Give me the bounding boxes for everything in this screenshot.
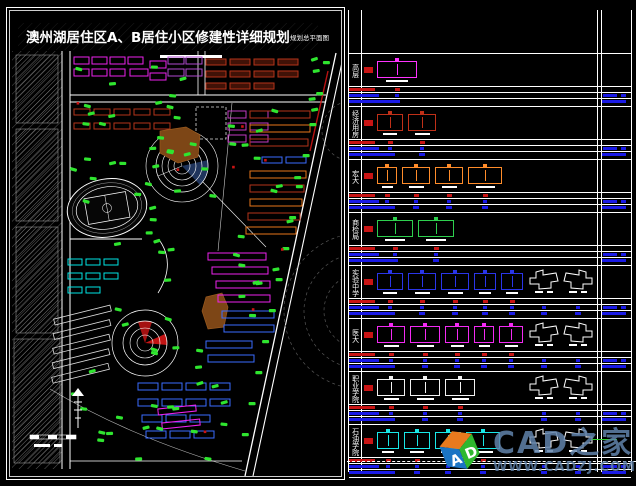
cluster-white-block (196, 107, 226, 139)
building-divider (390, 117, 391, 128)
blue-tick (388, 365, 394, 368)
building-elevation (408, 110, 436, 135)
color-swatch (364, 438, 373, 444)
building-divider (449, 170, 450, 181)
stat-row-blue-2 (349, 257, 631, 263)
white-building-elevation (563, 269, 593, 295)
building-elevation (377, 322, 405, 347)
blue-tick (388, 418, 394, 421)
building-divider (395, 223, 396, 234)
building-strip (349, 425, 631, 457)
stat-rows (349, 457, 631, 475)
red-tick (414, 194, 419, 197)
building-elevation (377, 375, 405, 400)
blue-tick (482, 312, 488, 315)
blue-tick (388, 306, 392, 309)
building-elevation (445, 375, 475, 400)
blue-total-bar (349, 306, 379, 309)
blue-tick (457, 418, 463, 421)
blue-tick (414, 200, 418, 203)
building-roof-notch (420, 111, 424, 115)
red-tick (420, 141, 425, 144)
blue-tick (447, 200, 451, 203)
color-swatch (364, 279, 373, 285)
area-label-bar (505, 345, 518, 347)
blue-tick (392, 259, 398, 262)
building-divider (511, 329, 512, 340)
lower-plaza (123, 321, 167, 365)
building-elevation (377, 110, 403, 135)
color-swatch (364, 120, 373, 126)
title-band: 澳州湖居住区A、B居住小区修建性详细规划 规划总平面图 (18, 23, 329, 58)
building-roof-notch (393, 217, 397, 221)
building-outline (377, 61, 417, 78)
stat-rows (349, 245, 631, 263)
blue-tick (541, 418, 547, 421)
red-tick (510, 300, 515, 303)
building-divider (485, 276, 486, 287)
building-roof-notch (482, 323, 486, 327)
stat-value-bar (602, 100, 626, 103)
stat-value-bar (603, 200, 617, 203)
boundary-dashed-line (347, 461, 636, 462)
building-roof-notch (483, 164, 487, 168)
stat-value-bar (602, 365, 626, 368)
red-tick (389, 353, 394, 356)
area-label-bar (382, 451, 394, 453)
building-roof-notch (453, 270, 457, 274)
building-divider (457, 329, 458, 340)
cluster-top-purple (168, 57, 202, 76)
blue-tick (434, 253, 438, 256)
building-elevation (499, 322, 523, 347)
blue-tick (446, 465, 450, 468)
blue-tick (423, 359, 427, 362)
area-label-bar (383, 292, 397, 294)
building-elevation (402, 163, 430, 188)
building-row (377, 375, 475, 400)
building-elevation (377, 216, 413, 241)
blue-tick (422, 365, 428, 368)
building-divider (422, 276, 423, 287)
building-elevation (410, 322, 440, 347)
building-roof-notch (389, 376, 393, 380)
red-tick (395, 88, 400, 91)
building-divider (391, 329, 392, 340)
building-roof-notch (389, 323, 393, 327)
building-strip (349, 319, 631, 351)
building-roof-notch (509, 323, 513, 327)
building-outline (499, 326, 523, 343)
stat-rows (349, 139, 631, 157)
building-elevation (408, 269, 436, 294)
building-elevation (377, 269, 403, 294)
area-label-bar (409, 186, 424, 188)
blue-tick (422, 418, 428, 421)
building-roof-notch (423, 323, 427, 327)
blue-tick (385, 200, 389, 203)
red-tick (388, 141, 393, 144)
city-hatch-strip (12, 51, 62, 469)
building-row (377, 322, 523, 347)
cluster-mid-darkred (74, 109, 170, 129)
blue-tick (542, 412, 546, 415)
building-strip (349, 266, 631, 298)
stat-value-bar (603, 147, 617, 150)
blue-tick (454, 365, 460, 368)
blue-total-bar (349, 412, 379, 415)
building-outline (377, 432, 399, 449)
color-swatch (364, 332, 373, 338)
blue-tick (483, 200, 487, 203)
white-building-elevation (563, 375, 593, 401)
area-label-bar (442, 186, 457, 188)
legend-row-8: 石油学院 (349, 424, 631, 477)
legend-rows: 高层经济用房宏大商检局实验中学医大职业学院石油学院 (349, 53, 631, 478)
building-divider (387, 170, 388, 181)
building-roof-notch (446, 429, 450, 433)
red-total-bar (349, 300, 375, 303)
stat-value-bar (602, 153, 626, 156)
building-outline (404, 432, 430, 449)
legend-row-6: 医大 (349, 318, 631, 371)
building-roof-notch (481, 429, 485, 433)
blue-tick (575, 418, 581, 421)
building-outline (474, 273, 496, 290)
building-strip (349, 160, 631, 192)
stat-value-bar (602, 259, 626, 262)
area-label-bar (410, 451, 424, 453)
cluster-west-cyan (68, 259, 118, 293)
building-divider (422, 117, 423, 128)
building-outline (377, 273, 403, 290)
stat-row-blue-2 (349, 363, 631, 369)
blue-tick (387, 153, 393, 156)
area-label-bar (441, 451, 455, 453)
building-outline (441, 273, 469, 290)
blue-tick (389, 359, 393, 362)
stat-value-bar (621, 465, 626, 468)
blue-tick (420, 306, 424, 309)
blue-tick (393, 253, 397, 256)
legend-row-5: 实验中学 (349, 265, 631, 318)
boundary-road (245, 53, 341, 476)
blue-tick (509, 359, 513, 362)
red-tick (482, 353, 487, 356)
red-total-bar (349, 406, 375, 409)
building-roof-notch (455, 323, 459, 327)
stat-value-bar (621, 359, 626, 362)
stat-rows (349, 298, 631, 316)
area-label-bar (417, 398, 434, 400)
stat-value-bar (603, 253, 617, 256)
blue-tick (576, 359, 580, 362)
blue-tick (541, 471, 547, 474)
blue-tick (510, 306, 514, 309)
red-tick (385, 194, 390, 197)
red-tick (423, 406, 428, 409)
building-roof-notch (423, 376, 427, 380)
blue-total-bar (349, 253, 379, 256)
area-label-bar (384, 398, 399, 400)
stat-value-bar (621, 94, 626, 97)
building-roof-notch (415, 429, 419, 433)
building-divider (416, 170, 417, 181)
building-elevation (418, 216, 454, 241)
site-plan-map: 澳州湖居住区A、B居住小区修建性详细规划 规划总平面图 (10, 11, 341, 476)
building-outline (408, 273, 436, 290)
blue-tick (482, 206, 488, 209)
blue-tick (453, 306, 457, 309)
blue-tick (458, 412, 462, 415)
building-roof-notch (420, 270, 424, 274)
red-tick (388, 300, 393, 303)
building-outline (418, 220, 454, 237)
blue-tick (415, 465, 419, 468)
building-roof-notch (388, 111, 392, 115)
blue-tick (481, 365, 487, 368)
building-outline (402, 167, 430, 184)
building-strip (349, 213, 631, 245)
stat-row-blue-2 (349, 151, 631, 157)
building-elevation (377, 428, 399, 453)
cluster-top-darkred (206, 59, 298, 89)
area-label-bar (386, 80, 408, 82)
building-elevation (468, 163, 502, 188)
area-label-bar (452, 398, 469, 400)
blue-tick (575, 365, 581, 368)
area-label-bar (417, 345, 434, 347)
color-swatch (364, 173, 373, 179)
blue-tick (394, 100, 400, 103)
building-divider (512, 276, 513, 287)
building-elevation (377, 57, 417, 82)
building-roof-notch (414, 164, 418, 168)
building-outline (466, 432, 500, 449)
blue-total-bar (349, 147, 379, 150)
building-outline (474, 326, 494, 343)
blue-total-bar (349, 465, 379, 468)
building-elevation (474, 269, 496, 294)
area-label-bar (479, 345, 490, 347)
blue-tick (542, 306, 546, 309)
color-swatch (364, 385, 373, 391)
stat-row-blue-2 (349, 98, 631, 104)
legend-row-2: 经济用房 (349, 106, 631, 159)
blue-total-bar (349, 100, 395, 103)
stat-value-bar (603, 306, 617, 309)
building-divider (388, 435, 389, 446)
blue-total-bar (349, 94, 379, 97)
drawing-subtitle: 规划总平面图 (290, 33, 329, 42)
building-outline (377, 326, 405, 343)
legend-panel: 高层经济用房宏大商检局实验中学医大职业学院石油学院 (348, 10, 632, 472)
red-tick (483, 300, 488, 303)
blue-tick (386, 465, 390, 468)
building-roof-notch (388, 270, 392, 274)
white-building-elevation (563, 428, 593, 454)
building-outline (377, 167, 397, 184)
area-label-bar (426, 239, 446, 241)
red-tick (455, 353, 460, 356)
blue-tick (388, 147, 392, 150)
stat-value-bar (621, 147, 626, 150)
stat-rows (349, 351, 631, 369)
contour-lines (284, 101, 341, 389)
building-row (377, 216, 454, 241)
building-strip (349, 54, 631, 86)
blue-tick (385, 471, 391, 474)
building-elevation (466, 428, 500, 453)
white-building-elevation (529, 375, 559, 401)
building-strip (349, 372, 631, 404)
red-total-bar (349, 353, 375, 356)
building-elevation (410, 375, 440, 400)
red-tick (434, 247, 439, 250)
stat-row-blue-2 (349, 204, 631, 210)
white-building-elevation (563, 322, 593, 348)
building-row (377, 428, 500, 453)
building-elevation (435, 163, 463, 188)
building-roof-notch (510, 270, 514, 274)
building-roof-notch (395, 58, 399, 62)
blue-tick (413, 206, 419, 209)
blue-total-bar (349, 259, 395, 262)
drawing-title: 澳州湖居住区A、B居住小区修建性详细规划 (26, 29, 290, 46)
blue-tick (414, 471, 420, 474)
stat-value-bar (621, 412, 626, 415)
building-row (377, 269, 523, 294)
blue-tick (575, 312, 581, 315)
building-outline (445, 326, 469, 343)
blue-tick (452, 312, 458, 315)
cluster-east-rows (246, 111, 310, 234)
blue-tick (389, 412, 393, 415)
area-label-bar (479, 292, 491, 294)
building-outline (410, 326, 440, 343)
building-outline (377, 220, 413, 237)
building-divider (425, 382, 426, 393)
building-divider (485, 170, 486, 181)
white-building-elevation (529, 322, 559, 348)
color-swatch (364, 67, 373, 73)
red-tick (423, 353, 428, 356)
building-divider (436, 223, 437, 234)
site-plan-frame: 澳州湖居住区A、B居住小区修建性详细规划 规划总平面图 (6, 7, 345, 480)
red-tick (483, 194, 488, 197)
building-elevation (441, 269, 469, 294)
red-tick (458, 406, 463, 409)
blue-tick (542, 359, 546, 362)
building-outline (468, 167, 502, 184)
building-elevation (435, 428, 461, 453)
blue-tick (446, 206, 452, 209)
building-outline (410, 379, 440, 396)
area-label-bar (451, 345, 464, 347)
stat-rows (349, 192, 631, 210)
building-outline (408, 114, 436, 131)
building-outline (435, 167, 463, 184)
blue-tick (423, 412, 427, 415)
red-total-bar (349, 194, 375, 197)
red-tick (420, 300, 425, 303)
blue-total-bar (349, 200, 379, 203)
red-tick (453, 300, 458, 303)
red-tick (447, 194, 452, 197)
cad-drawing-sheet: 澳州湖居住区A、B居住小区修建性详细规划 规划总平面图 (0, 0, 636, 486)
blue-tick (419, 312, 425, 315)
building-outline (377, 114, 403, 131)
building-outline (445, 379, 475, 396)
area-label-bar (385, 239, 405, 241)
area-label-bar (474, 451, 493, 453)
building-roof-notch (447, 164, 451, 168)
area-label-bar (383, 133, 397, 135)
green-reference-line (591, 439, 617, 440)
building-roof-notch (434, 217, 438, 221)
blue-tick (420, 147, 424, 150)
stat-value-bar (621, 253, 626, 256)
stat-row-blue-2 (349, 310, 631, 316)
building-divider (483, 435, 484, 446)
building-outline (377, 379, 405, 396)
building-outline (501, 273, 523, 290)
area-label-bar (415, 133, 430, 135)
stat-value-bar (602, 206, 626, 209)
blue-tick (445, 471, 451, 474)
building-row (377, 57, 417, 82)
blue-tick (455, 359, 459, 362)
red-total-bar (349, 88, 375, 91)
blue-tick (576, 306, 580, 309)
building-elevation (445, 322, 469, 347)
building-divider (484, 329, 485, 340)
area-label-bar (448, 292, 463, 294)
blue-tick (575, 471, 581, 474)
stat-value-bar (603, 465, 617, 468)
blue-tick (542, 465, 546, 468)
site-plan-inner-border: 澳州湖居住区A、B居住小区修建性详细规划 规划总平面图 (9, 10, 342, 477)
building-divider (455, 276, 456, 287)
legend-row-1: 高层 (349, 53, 631, 106)
red-total-bar (349, 141, 375, 144)
red-tick (509, 353, 514, 356)
stat-value-bar (602, 312, 626, 315)
white-building-elevation (529, 269, 559, 295)
area-label-bar (415, 292, 430, 294)
building-roof-notch (458, 376, 462, 380)
stat-row-blue-2 (349, 416, 631, 422)
building-strip (349, 107, 631, 139)
area-label-bar (382, 186, 393, 188)
stat-value-bar (603, 412, 617, 415)
area-label-bar (476, 186, 495, 188)
building-roof-notch (385, 164, 389, 168)
blue-tick (541, 365, 547, 368)
legend-row-3: 宏大 (349, 159, 631, 212)
building-elevation (474, 322, 494, 347)
stadium-track (63, 172, 152, 243)
stat-value-bar (621, 306, 626, 309)
blue-total-bar (349, 359, 379, 362)
blue-tick (576, 412, 580, 415)
building-divider (417, 435, 418, 446)
stat-value-bar (603, 359, 617, 362)
blue-tick (482, 359, 486, 362)
building-divider (390, 276, 391, 287)
building-row (377, 110, 436, 135)
blue-tick (508, 365, 514, 368)
